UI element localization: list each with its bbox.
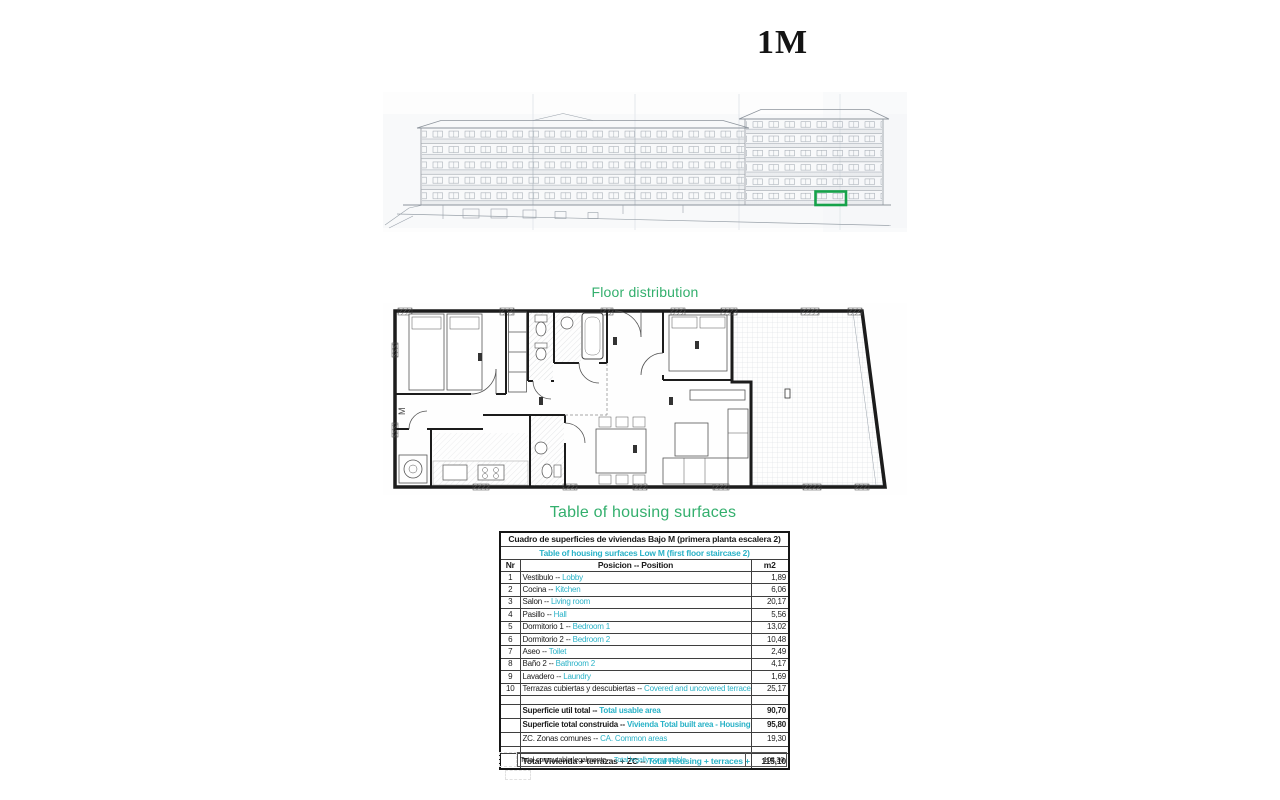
col-position: Posicion -- Position (520, 560, 751, 572)
toilet-symbol (542, 464, 552, 478)
row-position: Dormitorio 1 -- Bedroom 1 (520, 621, 751, 633)
floor-plan-drawing: M (383, 303, 907, 495)
row-m2: 20,17 (751, 596, 789, 608)
row-nr: 7 (500, 646, 520, 658)
row-position: Superficie util total -- Total usable ar… (520, 704, 751, 718)
row-nr: 4 (500, 609, 520, 621)
table-row: 9Lavadero -- Laundry1,69 (500, 671, 789, 683)
bidet-symbol (536, 348, 546, 360)
row-m2: 1,69 (751, 671, 789, 683)
right-building-block (739, 110, 889, 206)
table-row: 8Baño 2 -- Bathroom 24,17 (500, 658, 789, 670)
row-nr (500, 704, 520, 718)
surfaces-table-title: Table of housing surfaces (497, 504, 789, 522)
kitchen-sink-symbol (443, 465, 467, 480)
sheet-title: 1M (757, 24, 808, 62)
row-position: Salon -- Living room (520, 596, 751, 608)
facade-windows (422, 129, 744, 206)
bathroom2 (555, 312, 603, 362)
building-elevation-drawing (383, 92, 907, 232)
row-position: Terrazas cubiertas y descubiertas -- Cov… (520, 683, 751, 695)
table-row: 2Cocina -- Kitchen6,06 (500, 584, 789, 596)
staircase-m-label: M (397, 408, 407, 416)
summary-row: ZC. Zonas comunes -- CA. Common areas19,… (500, 732, 789, 746)
table-row: 5Dormitorio 1 -- Bedroom 113,02 (500, 621, 789, 633)
grid-artifact (505, 770, 531, 780)
row-m2: 19,30 (751, 732, 789, 746)
spacer-row (500, 695, 789, 704)
surfaces-table-wrap: Cuadro de superficies de viviendas Bajo … (499, 531, 788, 770)
row-nr: 2 (500, 584, 520, 596)
row-m2: 6,06 (751, 584, 789, 596)
row-position: Cocina -- Kitchen (520, 584, 751, 596)
row-m2: 13,02 (751, 621, 789, 633)
row-position: Superficie total construida -- Vivienda … (520, 718, 751, 732)
row-nr: 3 (500, 596, 520, 608)
coffee-table (675, 423, 708, 456)
row-position: Vestibulo -- Lobby (520, 572, 751, 584)
row-m2: 2,49 (751, 646, 789, 658)
summary-row: Superficie total construida -- Vivienda … (500, 718, 789, 732)
legal-row: Total computable legalmente -- Total leg… (518, 753, 787, 767)
table-row: 6Dormitorio 2 -- Bedroom 210,48 (500, 633, 789, 645)
sideboard (690, 390, 745, 400)
table-row: 3Salon -- Living room20,17 (500, 596, 789, 608)
col-nr: Nr (500, 560, 520, 572)
row-nr: 6 (500, 633, 520, 645)
toilet-symbol (536, 322, 546, 336)
table-header-es: Cuadro de superficies de viviendas Bajo … (500, 532, 789, 547)
table-row: 10Terrazas cubiertas y descubiertas -- C… (500, 683, 789, 695)
row-m2: 90,70 (751, 704, 789, 718)
facade-windows (746, 120, 882, 206)
socket-symbol (785, 389, 790, 398)
row-m2: 25,17 (751, 683, 789, 695)
legal-computable-table: Total computable legalmente -- Total leg… (517, 752, 787, 767)
legal-value: 103,30 (746, 753, 787, 767)
terrace (732, 312, 883, 485)
row-m2: 1,89 (751, 572, 789, 584)
header-spanish: Cuadro de superficies de viviendas Bajo … (500, 532, 789, 547)
summary-row: Superficie util total -- Total usable ar… (500, 704, 789, 718)
sofa (663, 458, 728, 484)
row-position: Aseo -- Toilet (520, 646, 751, 658)
row-nr: 8 (500, 658, 520, 670)
surface-summary: Superficie util total -- Total usable ar… (500, 704, 789, 746)
table-row: 4Pasillo -- Hall5,56 (500, 609, 789, 621)
column-header-row: Nr Posicion -- Position m2 (500, 560, 789, 572)
legal-label: Total computable legalmente -- Total leg… (518, 753, 746, 767)
row-position: ZC. Zonas comunes -- CA. Common areas (520, 732, 751, 746)
document-page: 1M (0, 0, 1280, 800)
table-row: 1Vestibulo -- Lobby1,89 (500, 572, 789, 584)
row-nr (500, 718, 520, 732)
housing-surfaces-table: Cuadro de superficies de viviendas Bajo … (499, 531, 790, 770)
row-nr: 5 (500, 621, 520, 633)
header-english: Table of housing surfaces Low M (first f… (500, 547, 789, 560)
dining-table (596, 429, 646, 473)
floor-plan-label: Floor distribution (383, 284, 907, 300)
row-nr: 1 (500, 572, 520, 584)
surface-rows: 1Vestibulo -- Lobby1,892Cocina -- Kitche… (500, 572, 789, 696)
row-m2: 5,56 (751, 609, 789, 621)
sink-symbol (535, 442, 547, 454)
grid-artifact (499, 752, 517, 767)
table-row: 7Aseo -- Toilet2,49 (500, 646, 789, 658)
stove-symbol (478, 465, 504, 480)
row-position: Baño 2 -- Bathroom 2 (520, 658, 751, 670)
row-m2: 4,17 (751, 658, 789, 670)
toilet-room (529, 312, 553, 380)
sink-symbol (561, 317, 573, 329)
kitchen (433, 433, 528, 485)
row-position: Pasillo -- Hall (520, 609, 751, 621)
row-nr: 9 (500, 671, 520, 683)
col-m2: m2 (751, 560, 789, 572)
row-nr (500, 732, 520, 746)
row-m2: 10,48 (751, 633, 789, 645)
table-header-en: Table of housing surfaces Low M (first f… (500, 547, 789, 560)
row-m2: 95,80 (751, 718, 789, 732)
row-position: Dormitorio 2 -- Bedroom 2 (520, 633, 751, 645)
row-nr: 10 (500, 683, 520, 695)
row-position: Lavadero -- Laundry (520, 671, 751, 683)
